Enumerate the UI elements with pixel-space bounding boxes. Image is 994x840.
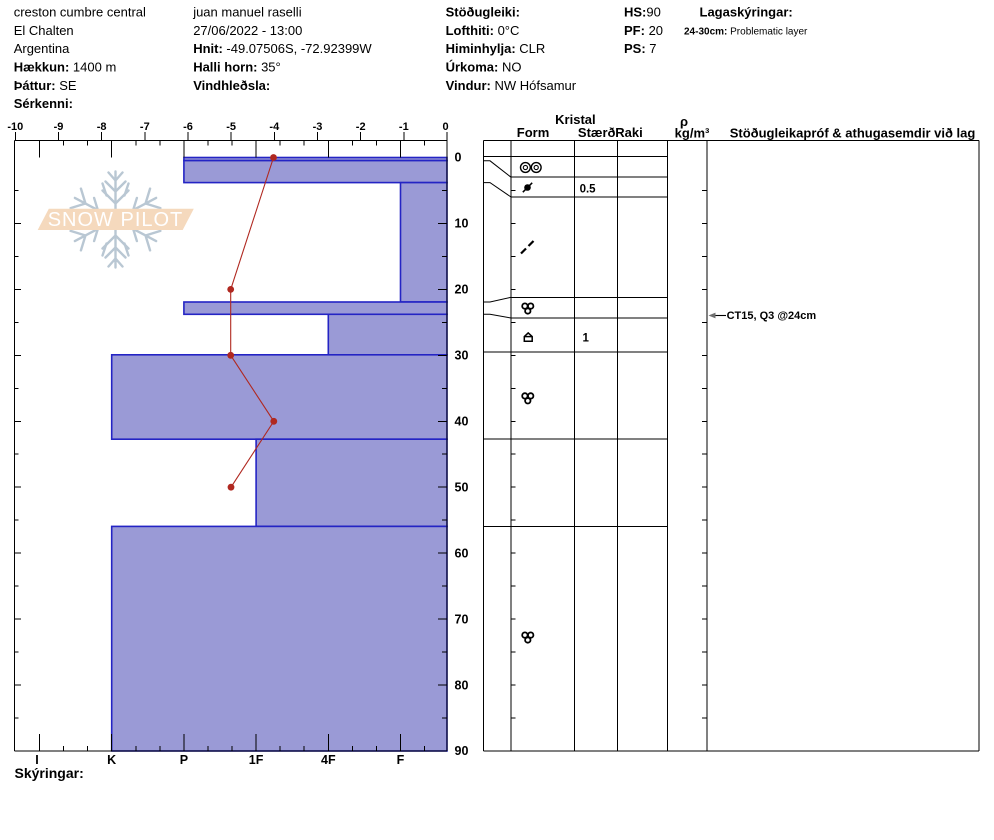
svg-text:24-30cm: Problematic layer: 24-30cm: Problematic layer [684, 27, 808, 38]
svg-text:K: K [107, 753, 116, 767]
svg-text:-1: -1 [399, 121, 409, 133]
svg-text:4F: 4F [321, 753, 336, 767]
svg-text:P: P [180, 753, 188, 767]
svg-text:Form: Form [517, 125, 550, 140]
svg-text:Halli horn: 35°: Halli horn: 35° [193, 60, 281, 75]
svg-text:Skýringar:: Skýringar: [15, 765, 84, 781]
svg-text:-9: -9 [54, 121, 64, 133]
svg-text:0.5: 0.5 [580, 183, 597, 195]
svg-text:Vindur: NW Hófsamur: Vindur: NW Hófsamur [446, 78, 577, 93]
svg-text:Þáttur: SE: Þáttur: SE [14, 78, 77, 93]
svg-text:1: 1 [583, 333, 590, 345]
svg-text:Stærð: Stærð [578, 125, 616, 140]
svg-text:-2: -2 [356, 121, 366, 133]
svg-text:10: 10 [455, 217, 469, 231]
svg-text:20: 20 [455, 283, 469, 297]
svg-text:-10: -10 [7, 121, 23, 133]
svg-text:80: 80 [455, 678, 469, 692]
svg-text:0: 0 [442, 121, 448, 133]
svg-text:Hnit: -49.07506S, -72.92399W: Hnit: -49.07506S, -72.92399W [193, 41, 372, 56]
svg-text:SNOW PILOT: SNOW PILOT [48, 209, 184, 231]
svg-text:-5: -5 [226, 121, 236, 133]
svg-text:El Chalten: El Chalten [14, 23, 74, 38]
svg-text:40: 40 [455, 415, 469, 429]
svg-text:-3: -3 [313, 121, 323, 133]
svg-text:creston cumbre central: creston cumbre central [14, 5, 146, 20]
svg-text:-6: -6 [183, 121, 193, 133]
svg-text:F: F [397, 753, 405, 767]
svg-text:Lagaskýringar:: Lagaskýringar: [700, 5, 793, 20]
svg-text:-4: -4 [269, 121, 280, 133]
svg-text:kg/m³: kg/m³ [675, 126, 710, 141]
svg-text:-7: -7 [140, 121, 150, 133]
svg-text:Sérkenni:: Sérkenni: [14, 96, 73, 111]
svg-text:Himinhylja: CLR: Himinhylja: CLR [446, 41, 546, 56]
svg-text:PS: 7: PS: 7 [624, 41, 657, 56]
svg-text:Stöðugleikapróf & athugasemdir: Stöðugleikapróf & athugasemdir við lag [730, 126, 976, 141]
svg-text:Stöðugleiki:: Stöðugleiki: [446, 5, 520, 20]
svg-text:Hækkun: 1400 m: Hækkun: 1400 m [14, 60, 117, 75]
svg-text:HS:90: HS:90 [624, 5, 661, 20]
svg-text:Vindhleðsla:: Vindhleðsla: [193, 78, 270, 93]
svg-text:60: 60 [455, 546, 469, 560]
svg-text:CT15, Q3 @24cm: CT15, Q3 @24cm [727, 310, 817, 322]
svg-text:90: 90 [455, 744, 469, 758]
svg-text:Lofthiti: 0°C: Lofthiti: 0°C [446, 23, 520, 38]
svg-text:1F: 1F [249, 753, 264, 767]
svg-text:0: 0 [455, 151, 462, 165]
svg-text:50: 50 [455, 480, 469, 494]
svg-text:Raki: Raki [615, 125, 642, 140]
svg-text:27/06/2022 - 13:00: 27/06/2022 - 13:00 [193, 23, 302, 38]
svg-text:-8: -8 [97, 121, 107, 133]
svg-text:Úrkoma: NO: Úrkoma: NO [446, 60, 522, 75]
svg-text:PF: 20: PF: 20 [624, 23, 663, 38]
svg-text:Argentina: Argentina [14, 41, 70, 56]
svg-text:70: 70 [455, 612, 469, 626]
svg-text:30: 30 [455, 349, 469, 363]
svg-text:juan manuel raselli: juan manuel raselli [192, 5, 302, 20]
